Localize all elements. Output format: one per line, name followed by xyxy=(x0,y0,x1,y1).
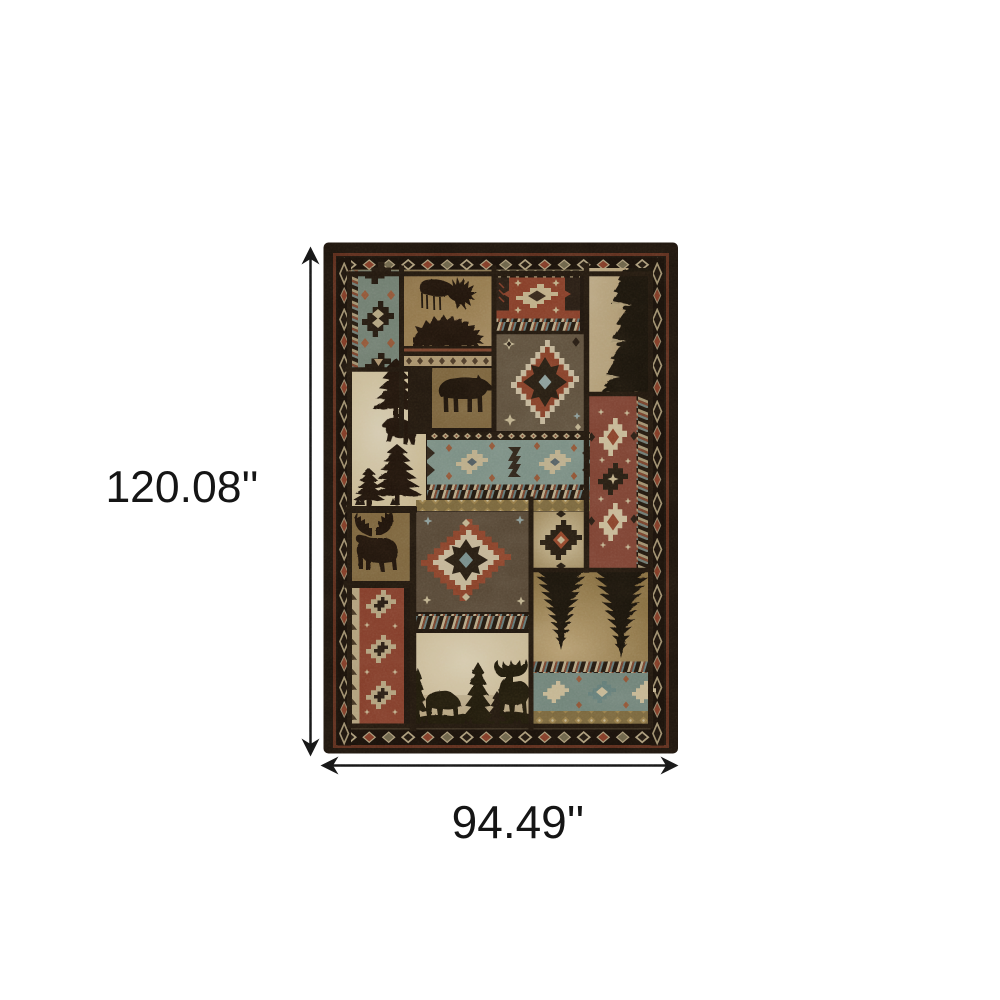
svg-text:94.49'': 94.49'' xyxy=(452,796,585,848)
svg-text:120.08'': 120.08'' xyxy=(105,463,258,512)
